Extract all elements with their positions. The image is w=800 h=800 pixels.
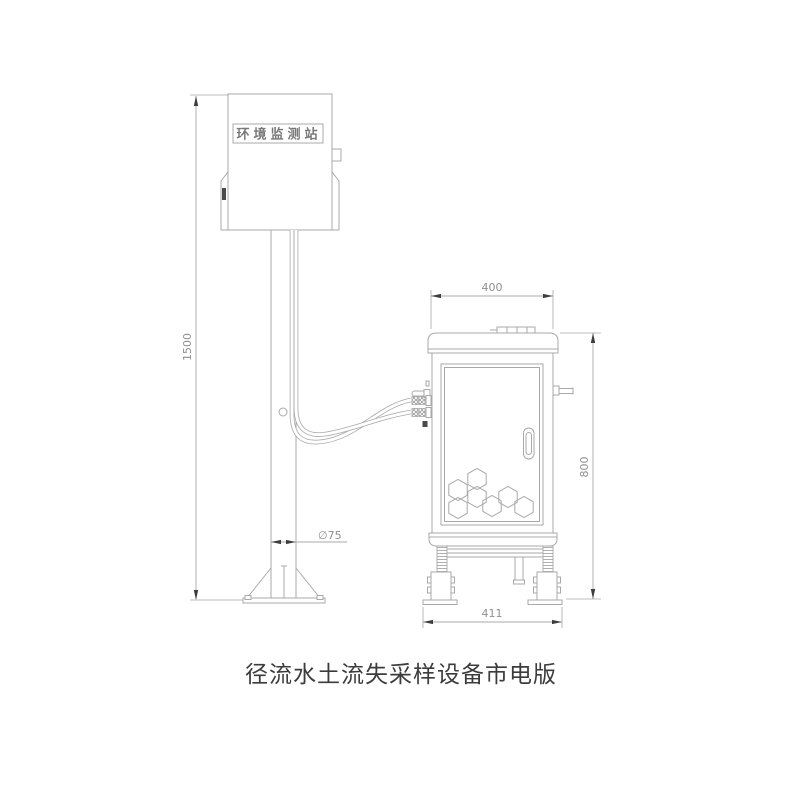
inlet-fittings <box>412 381 431 427</box>
right-leg <box>528 546 562 605</box>
right-mount-bracket <box>332 172 339 230</box>
right-side-fitting <box>553 386 573 395</box>
left-gusset <box>247 568 271 598</box>
lower-port-plug <box>423 421 428 427</box>
arrowhead-right <box>543 294 553 298</box>
small-nozzle <box>412 391 425 396</box>
top-hinge-strip <box>490 327 535 333</box>
arrowhead-down <box>591 589 595 599</box>
arrowhead-up <box>194 96 198 106</box>
connection-tubes <box>292 230 411 442</box>
dim-label-base-width: 411 <box>482 607 503 620</box>
base-bolt-left <box>245 596 251 600</box>
tube-1 <box>292 230 411 442</box>
fitting-lower <box>412 408 431 418</box>
pole-station-assembly: 1500 环境监测站 <box>181 94 431 603</box>
left-foot-plate <box>423 600 457 605</box>
station-enclosure <box>228 94 332 230</box>
drawing-title: 径流水土流失采样设备市电版 <box>245 662 557 687</box>
dimension-cabinet-width: 400 <box>431 281 553 329</box>
cabinet-stand <box>423 546 562 605</box>
fitting-upper <box>412 396 431 406</box>
arrowhead-right <box>552 620 562 624</box>
pole-base-flange <box>243 566 325 603</box>
dimension-cabinet-height: 800 <box>560 333 601 599</box>
drawing-svg: 1500 环境监测站 <box>0 0 800 800</box>
base-plate <box>243 598 325 603</box>
cabinet-bottom-cap <box>429 533 557 546</box>
dim-label-pole-diameter: ∅75 <box>318 529 342 542</box>
engineering-drawing-canvas: 1500 环境监测站 <box>0 0 800 800</box>
right-gusset <box>296 568 320 598</box>
left-mount-bracket <box>221 172 228 230</box>
dimension-base-width: 411 <box>423 607 562 628</box>
cabinet <box>428 327 573 546</box>
arrowhead-left <box>431 294 441 298</box>
arrowhead-up <box>591 333 595 343</box>
cabinet-body <box>432 353 553 537</box>
station-nameplate-text: 环境监测站 <box>236 127 321 142</box>
bracket-latch <box>222 188 226 200</box>
drain-pipe <box>514 557 525 584</box>
base-bolt-right <box>317 596 323 600</box>
sampling-cabinet-assembly: 400 <box>423 281 601 628</box>
dim-label-cabinet-width: 400 <box>482 281 503 294</box>
arrowhead-down <box>194 590 198 600</box>
arrowhead-left <box>423 620 433 624</box>
dim-label-pole-height: 1500 <box>181 333 194 361</box>
monitoring-station-box: 环境监测站 <box>221 94 341 230</box>
left-leg <box>423 546 457 605</box>
cabinet-top-cap <box>428 333 558 353</box>
top-tick-fitting <box>426 381 429 386</box>
dim-label-cabinet-height: 800 <box>578 457 591 478</box>
side-port-box <box>332 149 341 161</box>
right-foot-plate <box>528 600 562 605</box>
